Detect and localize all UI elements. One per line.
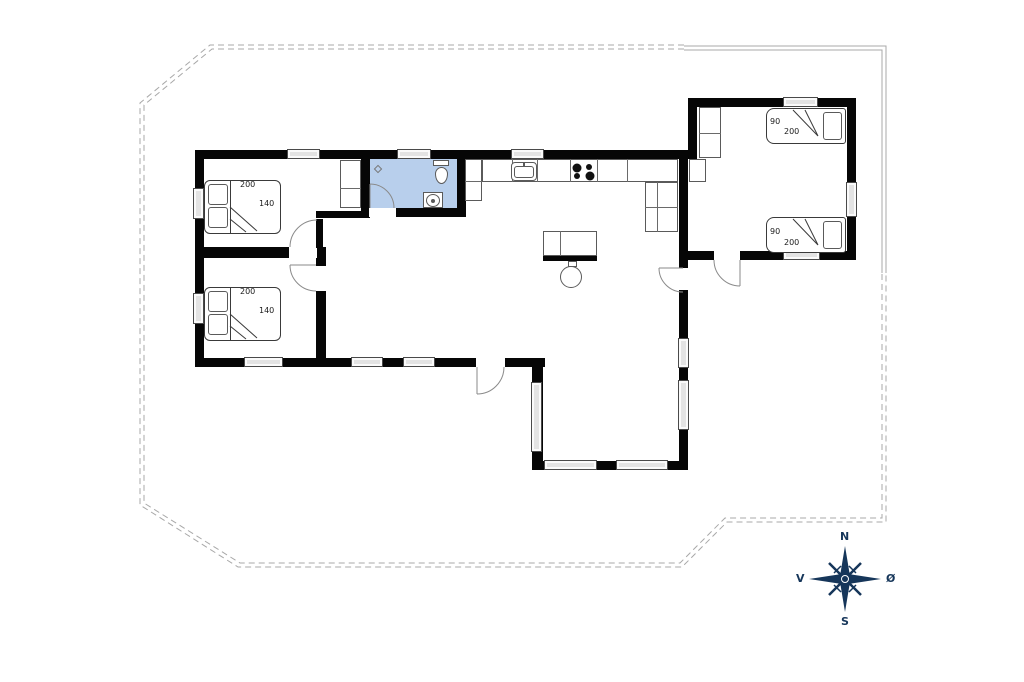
- window-bedroom2-west: [193, 293, 204, 324]
- window-living-south-2: [403, 357, 435, 367]
- wardrobe-annex-divider: [699, 133, 721, 134]
- annex-bed-north-pillow: [823, 112, 842, 140]
- wall-annex-top: [688, 98, 856, 107]
- counter-divider-5: [627, 159, 628, 182]
- bedroom2-bed-length-label: 200: [240, 288, 255, 296]
- cabinet-tall-kitchen: [465, 159, 482, 201]
- wall-main-left: [195, 150, 204, 367]
- window-extension-south-1: [544, 460, 597, 470]
- bedroom2-bed-width-label: 140: [259, 307, 274, 315]
- door-opening-bedroom2: [316, 266, 326, 291]
- island-table-divider: [560, 231, 561, 256]
- annex-bed-south-width-label: 90: [770, 228, 780, 236]
- bedroom1-bed-width-label: 140: [259, 200, 274, 208]
- compass-north-label: N: [840, 531, 849, 542]
- door-opening-annex: [714, 251, 740, 260]
- window-annex-north: [783, 97, 818, 107]
- annex-bed-north-length-label: 200: [784, 128, 799, 136]
- kitchen-sink-faucet: [523, 162, 525, 166]
- cabinet-tall-divider: [465, 181, 482, 182]
- compass-west-label: V: [796, 573, 805, 584]
- annex-bed-south-length-label: 200: [784, 239, 799, 247]
- bedroom1-bed-length-label: 200: [240, 181, 255, 189]
- wall-annex-west: [688, 98, 697, 159]
- counter-divider-2: [537, 159, 538, 182]
- window-extension-east-1: [678, 338, 689, 368]
- window-extension-west: [531, 382, 542, 452]
- door-arc-annex: [714, 260, 740, 286]
- window-extension-east-2: [678, 380, 689, 430]
- island-table: [543, 231, 597, 256]
- bedroom1-pillow-1: [208, 184, 228, 205]
- door-opening-bedroom1: [289, 247, 317, 258]
- annex-bed-south-pillow: [823, 221, 842, 249]
- toilet-tank: [433, 160, 449, 166]
- wall-annex-east: [847, 98, 856, 260]
- kitchen-sink-basin: [514, 166, 534, 178]
- window-bedroom1-west: [193, 188, 204, 219]
- closet-hall-divider: [340, 188, 361, 189]
- window-bathroom-north: [397, 149, 431, 159]
- counter-divider-4: [597, 159, 598, 182]
- floor-plan-canvas: 200 140 200 140 90 200 90 200: [0, 0, 1024, 682]
- window-extension-south-2: [616, 460, 668, 470]
- door-opening-entrance: [476, 358, 505, 367]
- window-living-south-1: [351, 357, 383, 367]
- window-annex-east: [846, 182, 857, 217]
- compass-rose-icon: [809, 546, 881, 612]
- lamp: [560, 266, 582, 288]
- door-opening-bathroom: [369, 208, 396, 217]
- window-bedroom1-north: [287, 149, 320, 159]
- bedroom2-mattress-line: [230, 288, 231, 340]
- window-bedroom2-south: [244, 357, 283, 367]
- annex-bed-north-width-label: 90: [770, 118, 780, 126]
- cabinet-annex-sw: [689, 159, 706, 182]
- plan-overlay: [0, 0, 1024, 682]
- wall-main-top: [195, 150, 697, 159]
- compass-east-label: Ø: [886, 573, 895, 584]
- door-leaf-bedroom1: [316, 219, 323, 248]
- counter-divider-3: [570, 159, 571, 182]
- bedroom1-mattress-line: [230, 181, 231, 233]
- closet-hall: [340, 160, 361, 208]
- cabinet-column-divider-1: [645, 207, 678, 208]
- bedroom1-pillow-2: [208, 207, 228, 228]
- door-arc-terrace: [659, 268, 683, 292]
- window-kitchen-north: [511, 149, 544, 159]
- bedroom2-pillow-2: [208, 314, 228, 335]
- cabinet-column-divider-2: [657, 182, 658, 232]
- washbasin-drain: [431, 199, 435, 203]
- bedroom2-pillow-1: [208, 291, 228, 312]
- compass-south-label: S: [841, 616, 849, 627]
- door-arc-bedroom1: [290, 220, 317, 247]
- door-arc-entrance: [477, 367, 504, 394]
- door-arc-bedroom2: [290, 265, 316, 291]
